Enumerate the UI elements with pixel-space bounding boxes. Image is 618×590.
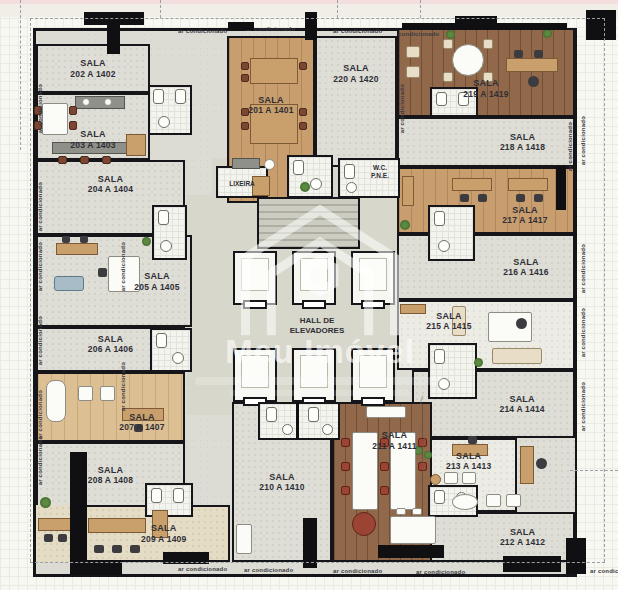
chair: [299, 62, 307, 70]
room-216: SALA216 A 1416: [397, 234, 575, 300]
room-205-title: SALA: [144, 271, 169, 282]
chair: [62, 236, 70, 243]
pod-divider-wall: [296, 402, 299, 440]
room-219-code: 219 A 1419: [463, 89, 508, 99]
signature-watermark: [412, 392, 434, 504]
ac-label: ar condicionado: [37, 84, 43, 133]
elevator-hall-label: HALL DEELEVADORES: [262, 316, 372, 336]
room-211-code: 211 A 1411: [372, 441, 416, 451]
chair: [241, 62, 249, 70]
toilet-icon: [158, 210, 169, 225]
grid-line: [20, 0, 21, 150]
room-209-code: 209 A 1409: [141, 534, 186, 544]
round-table: [352, 512, 376, 536]
desk: [520, 446, 534, 484]
armchair: [486, 494, 501, 507]
grid-line: [337, 0, 338, 18]
chair: [468, 436, 477, 444]
chair: [443, 39, 453, 49]
ac-label: ar condicionado: [37, 182, 43, 231]
plant: [400, 220, 410, 230]
room-215-code: 215 A 1415: [426, 321, 471, 331]
chair: [341, 462, 350, 471]
office-chair: [516, 318, 527, 329]
toilet-icon: [175, 89, 186, 104]
ac-label: ar condicionado: [590, 568, 618, 574]
toilet-icon: [434, 349, 445, 364]
ac-label: ar condicionado: [416, 569, 465, 575]
top-edge-line: [0, 0, 618, 4]
wall-segment: [378, 545, 444, 558]
chair: [341, 438, 350, 447]
toilet-icon: [153, 89, 164, 104]
room-204-code: 204 A 1404: [88, 184, 133, 194]
ac-label: ar condicionado: [120, 242, 126, 291]
room-213-code: 213 A 1413: [446, 461, 491, 471]
chair: [241, 74, 249, 82]
armchair: [100, 386, 115, 401]
elevator-2: [292, 251, 336, 305]
setback-line: [604, 18, 605, 562]
ac-label: ar condicionado: [37, 436, 43, 485]
room-212-code: 212 A 1412: [500, 537, 545, 547]
room-208: SALA208 A 1408: [36, 442, 185, 508]
room-209-title: SALA: [151, 523, 176, 534]
room-208-title: SALA: [98, 465, 123, 476]
chair: [460, 194, 469, 202]
chair: [241, 122, 249, 130]
chair: [80, 236, 88, 243]
ac-label: ar condicionado: [37, 390, 43, 439]
wall-segment: [503, 556, 561, 572]
room-216-title: SALA: [513, 257, 538, 268]
room-206-title: SALA: [98, 334, 123, 345]
chair: [341, 486, 350, 495]
ac-label: ar condicionado: [580, 382, 586, 431]
room-202: SALA202 A 1402: [36, 44, 150, 93]
chair: [380, 462, 389, 471]
lixeira-label: LIXEIRA: [214, 180, 270, 188]
chair: [534, 50, 543, 58]
ac-label: ar condicionado: [37, 316, 43, 365]
elevator-5: [292, 348, 336, 402]
room-215: SALA215 A 1415: [397, 300, 575, 370]
chair: [58, 534, 67, 542]
plant: [142, 237, 151, 246]
chair: [396, 508, 406, 515]
room-206-code: 206 A 1406: [88, 344, 133, 354]
setback-line: [30, 562, 605, 563]
chaise: [46, 380, 66, 422]
wall-segment: [70, 452, 87, 574]
room-214-code: 214 A 1414: [499, 404, 544, 414]
grid-line: [420, 0, 421, 18]
sink-icon: [438, 378, 450, 390]
plant: [300, 182, 310, 192]
side-table: [264, 159, 275, 170]
room-218: SALA218 A 1418: [397, 117, 575, 167]
chair: [514, 50, 523, 58]
toilet-icon: [344, 164, 355, 179]
sink-icon: [104, 98, 112, 106]
plant: [474, 358, 483, 367]
ac-label: ar condicionado: [244, 567, 293, 573]
room-205-code: 205 A 1405: [134, 282, 179, 292]
room-207-title: SALA: [129, 412, 154, 423]
room-210-title: SALA: [269, 472, 294, 483]
elevator-6: [351, 348, 395, 402]
table: [390, 516, 436, 544]
wall-segment: [228, 22, 254, 30]
sink-icon: [346, 182, 357, 193]
armchair: [78, 386, 93, 401]
ac-label: ar condicionado: [178, 28, 227, 34]
ac-label: ar condicionado: [37, 242, 43, 291]
sink-icon: [160, 240, 172, 252]
room-203-code: 203 A 1403: [70, 140, 115, 150]
ac-label: ar condicionado: [580, 308, 586, 357]
elevator-3: [351, 251, 395, 305]
plant: [446, 30, 455, 39]
room-220-title: SALA: [343, 63, 368, 74]
toilet-icon: [293, 160, 304, 175]
chair: [483, 39, 493, 49]
chair: [412, 508, 422, 515]
sink-icon: [82, 98, 90, 106]
desk: [56, 243, 98, 255]
floor-plan: SALA202 A 1402 SALA203 A 1403 SALA204 A …: [0, 0, 618, 590]
armchair: [506, 494, 521, 507]
chaise: [54, 276, 84, 291]
plant: [543, 29, 552, 38]
room-216-code: 216 A 1416: [503, 267, 548, 277]
room-204-title: SALA: [98, 174, 123, 185]
grid-line: [160, 0, 161, 18]
ac-label: ar condicionado: [567, 122, 573, 171]
desk: [366, 406, 406, 418]
setback-line: [30, 18, 605, 19]
armchair: [406, 46, 420, 58]
room-211-title: SALA: [382, 430, 407, 441]
ac-label: ar condicionado: [120, 362, 126, 411]
wall-segment: [402, 23, 567, 30]
room-217-code: 217 A 1417: [502, 215, 547, 225]
elevator-1: [233, 251, 277, 305]
sink-icon: [310, 178, 322, 190]
room-208-code: 208 A 1408: [88, 475, 133, 485]
ac-label: ar condicionado: [333, 28, 382, 34]
cabinet: [232, 158, 260, 169]
room-220: SALA220 A 1420: [315, 36, 397, 167]
chair: [69, 106, 77, 115]
chair: [44, 534, 53, 542]
room-210-code: 210 A 1410: [259, 482, 304, 492]
room-201-title: SALA: [258, 95, 283, 106]
chair: [299, 122, 307, 130]
room-214-title: SALA: [509, 394, 534, 405]
wall-segment: [586, 10, 616, 40]
room-219-title: SALA: [473, 78, 498, 89]
wall-segment: [303, 518, 317, 568]
chair: [380, 486, 389, 495]
room-201-code: 201 A 1401: [248, 105, 293, 115]
ac-label: ar condicionado: [580, 116, 586, 165]
daybed: [492, 348, 542, 364]
room-203-title: SALA: [80, 129, 105, 140]
ac-label: ar condicionado: [399, 84, 405, 133]
room-213-title: SALA: [456, 451, 481, 462]
toilet-icon: [434, 490, 445, 504]
sink-icon: [158, 116, 170, 128]
wall-segment: [305, 12, 317, 40]
oval-table: [452, 494, 478, 510]
setback-line: [30, 18, 31, 562]
cabinet: [402, 176, 414, 206]
meeting-table: [250, 58, 298, 84]
grid-line: [570, 470, 618, 471]
desk: [452, 178, 492, 191]
elevator-4: [233, 348, 277, 402]
wc-pne-label: W.C.P.N.E.: [362, 164, 398, 180]
room-220-code: 220 A 1420: [333, 74, 378, 84]
room-202-title: SALA: [80, 58, 105, 69]
room-215-title: SALA: [436, 311, 461, 322]
sink-icon: [438, 240, 450, 252]
office-chair: [536, 458, 547, 469]
room-207-code: 207 A 1407: [119, 422, 164, 432]
wall-segment: [556, 166, 566, 210]
ac-label: ar condicionado: [178, 566, 227, 572]
room-218-code: 218 A 1418: [500, 142, 545, 152]
room-202-code: 202 A 1402: [70, 69, 115, 79]
desk: [508, 178, 548, 191]
wall-segment: [566, 538, 586, 574]
room-217-title: SALA: [512, 205, 537, 216]
toilet-icon: [434, 211, 445, 226]
stairwell: [257, 197, 360, 249]
room-212-title: SALA: [510, 527, 535, 538]
ac-label: ar condicionado: [333, 568, 382, 574]
room-210: SALA210 A 1410: [232, 402, 332, 562]
ac-label: ar condicionado: [580, 244, 586, 293]
room-218-title: SALA: [510, 132, 535, 143]
office-chair: [98, 268, 107, 277]
